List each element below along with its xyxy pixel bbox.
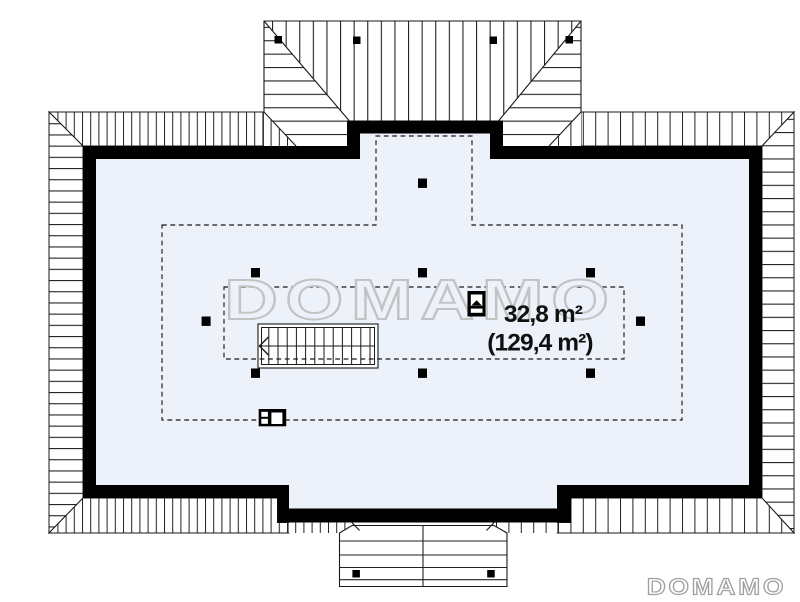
svg-text:(129,4 m²): (129,4 m²) bbox=[487, 330, 592, 357]
svg-text:DOMAMO: DOMAMO bbox=[647, 574, 787, 600]
svg-text:32,8 m²: 32,8 m² bbox=[504, 301, 583, 328]
